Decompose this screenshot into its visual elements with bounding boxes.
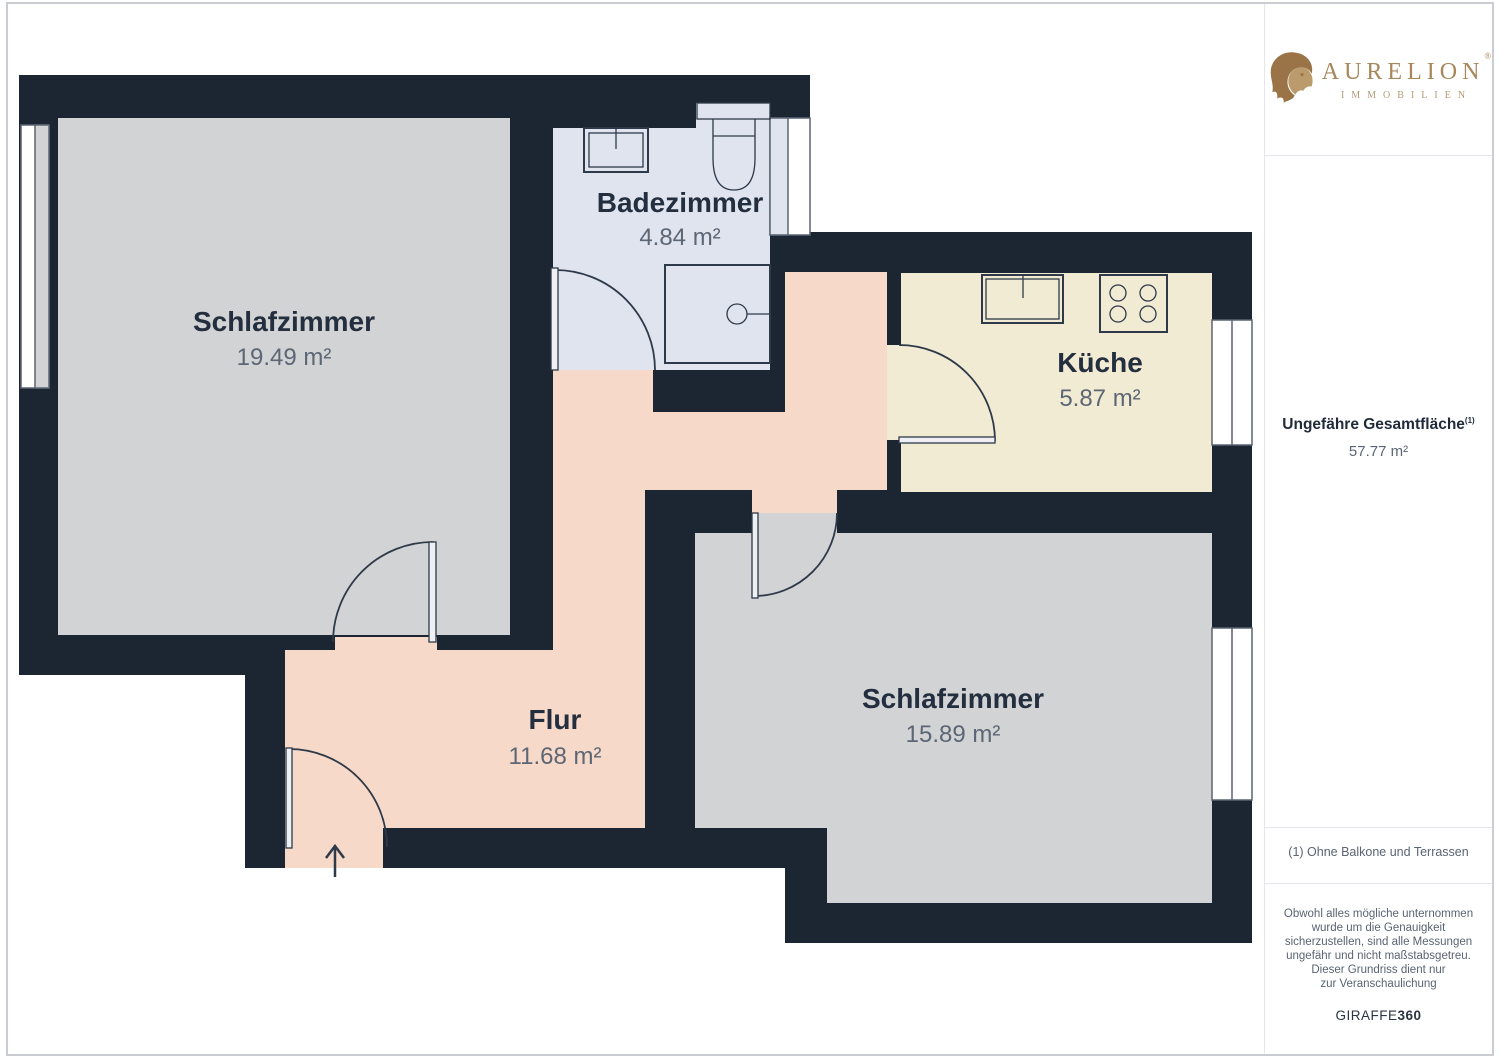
total-area-label: Ungefähre Gesamtfläche(1) <box>1264 416 1493 434</box>
disclaimer-line: Obwohl alles mögliche unternommen <box>1264 907 1493 921</box>
room-area-kueche: 5.87 m² <box>1059 385 1140 412</box>
disclaimer-line: ungefähr und nicht maßstabsgetreu. <box>1264 949 1493 963</box>
floor-plan: Schlafzimmer 19.49 m² Badezimmer 4.84 m²… <box>0 0 1264 1061</box>
divider-footnote-top <box>1264 827 1493 828</box>
disclaimer-line: wurde um die Genauigkeit <box>1264 921 1493 935</box>
brand-name: AURELION® <box>1322 59 1492 86</box>
room-label-badezimmer: Badezimmer <box>597 187 764 218</box>
room-area-schlafzimmer-1: 19.49 m² <box>237 344 332 371</box>
room-label-schlafzimmer-1: Schlafzimmer <box>193 306 375 337</box>
window-schlafzimmer-2 <box>1212 628 1252 800</box>
room-label-flur: Flur <box>529 704 582 735</box>
door-threshold-schlafzimmer2-inner <box>752 513 837 534</box>
door-threshold-schlafzimmer2 <box>752 490 837 513</box>
disclaimer: Obwohl alles mögliche unternommen wurde … <box>1264 907 1493 991</box>
window-badezimmer <box>770 118 810 235</box>
disclaimer-line: Dieser Grundriss dient nur <box>1264 963 1493 977</box>
room-kueche-floor <box>887 273 1212 492</box>
sidebar: AURELION® IMMOBILIEN Ungefähre Gesamtflä… <box>1264 2 1494 1052</box>
room-schlafzimmer-1-floor <box>58 118 510 635</box>
page: Schlafzimmer 19.49 m² Badezimmer 4.84 m²… <box>0 0 1500 1061</box>
door-threshold-bad <box>553 370 653 412</box>
window-kueche <box>1212 320 1252 445</box>
footnote-text: (1) Ohne Balkone und Terrassen <box>1264 845 1493 859</box>
room-area-flur: 11.68 m² <box>509 743 602 770</box>
room-label-kueche: Küche <box>1057 347 1143 378</box>
footnote-ref: (1) <box>1465 416 1475 425</box>
room-area-badezimmer: 4.84 m² <box>639 224 720 251</box>
divider-footnote-bottom <box>1264 883 1493 884</box>
divider-top <box>1264 155 1493 156</box>
total-area-block: Ungefähre Gesamtfläche(1) 57.77 m² <box>1264 416 1493 460</box>
registered-mark: ® <box>1484 51 1491 61</box>
window-schlafzimmer-1 <box>21 125 49 388</box>
door-threshold-schlafzimmer1 <box>335 637 437 650</box>
disclaimer-line: zur Veranschaulichung <box>1264 977 1493 991</box>
brand-subtitle: IMMOBILIEN <box>1341 90 1472 101</box>
room-area-schlafzimmer-2: 15.89 m² <box>906 721 1001 748</box>
giraffe360-credit: GIRAFFE360 <box>1264 1008 1493 1023</box>
brand-logo: AURELION® IMMOBILIEN <box>1264 50 1493 109</box>
disclaimer-line: sicherzustellen, sind alle Messungen <box>1264 935 1493 949</box>
lion-logo-icon <box>1266 50 1314 109</box>
room-label-schlafzimmer-2: Schlafzimmer <box>862 683 1044 714</box>
total-area-value: 57.77 m² <box>1264 443 1493 460</box>
